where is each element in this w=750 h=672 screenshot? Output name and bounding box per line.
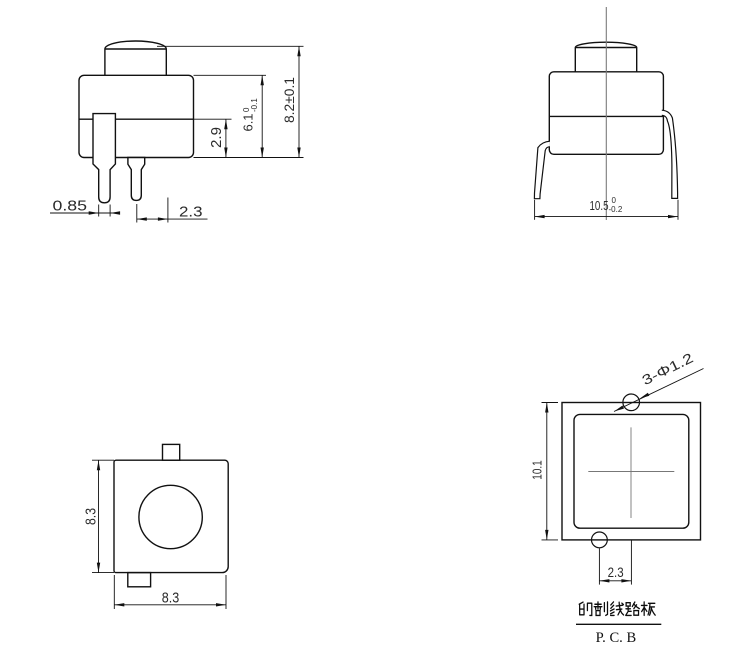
svg-text:6.1: 6.1 (241, 113, 256, 131)
svg-text:10.1: 10.1 (530, 460, 545, 480)
svg-text:10.5: 10.5 (590, 198, 609, 213)
svg-text:8.2±0.1: 8.2±0.1 (282, 77, 297, 123)
svg-text:8.3: 8.3 (83, 508, 100, 525)
svg-text:2.9: 2.9 (209, 127, 225, 148)
svg-text:P. C. B: P. C. B (596, 630, 637, 646)
svg-text:0.85: 0.85 (53, 198, 88, 215)
svg-text:8.3: 8.3 (162, 591, 180, 607)
svg-text:-0.1: -0.1 (250, 98, 259, 112)
svg-text:0: 0 (612, 196, 617, 205)
svg-text:2.3: 2.3 (608, 564, 624, 580)
svg-text:2.3: 2.3 (179, 204, 203, 221)
svg-text:-0.2: -0.2 (609, 205, 623, 214)
